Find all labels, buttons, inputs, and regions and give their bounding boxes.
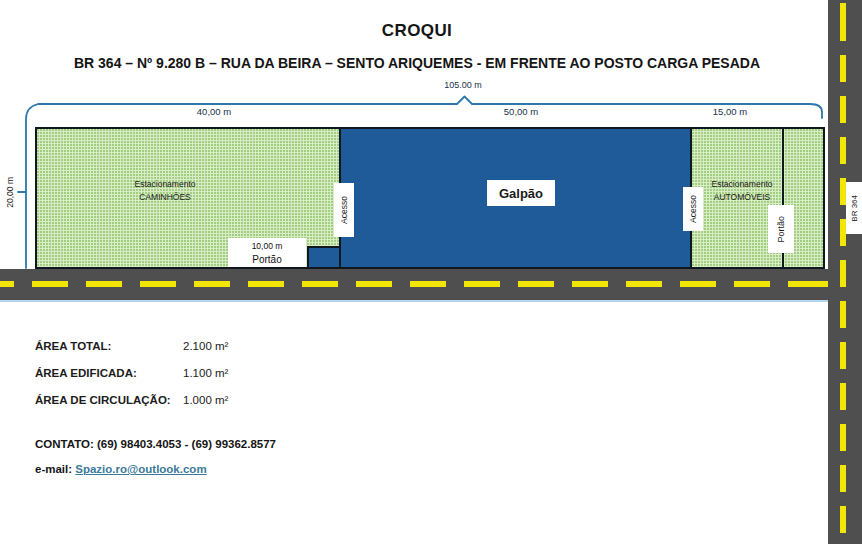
- site-plan: Estacionamento CAMINHÕES Galpão Acesso A…: [35, 127, 825, 269]
- dim-warehouse-label: 50,00 m: [461, 106, 581, 117]
- dim-car-parking-label: 15,00 m: [670, 106, 790, 117]
- area-value: 2.100 m²: [183, 340, 228, 352]
- area-row-circulation: ÁREA DE CIRCULAÇÃO: 1.000 m²: [35, 386, 228, 413]
- lane-marking-vertical: [840, 0, 846, 544]
- area-label: ÁREA DE CIRCULAÇÃO:: [35, 394, 183, 406]
- access-left-label: Acesso: [334, 183, 354, 237]
- page-subtitle: BR 364 – Nº 9.280 B – RUA DA BEIRA – SEN…: [0, 55, 834, 71]
- car-parking-label: Estacionamento AUTOMÓVEIS: [657, 178, 827, 204]
- highway-label: BR 364: [846, 182, 862, 234]
- truck-parking-label: Estacionamento CAMINHÕES: [37, 178, 293, 204]
- dim-depth-label: 20,00 m: [1, 160, 18, 224]
- contact-email-row: e-mail: Spazio.ro@outlook.com: [35, 463, 207, 475]
- page-title: CROQUI: [0, 21, 834, 41]
- road-vertical-br364: [828, 0, 862, 544]
- areas-table: ÁREA TOTAL: 2.100 m² ÁREA EDIFICADA: 1.1…: [35, 332, 228, 413]
- lane-marking-horizontal: [0, 281, 830, 287]
- contact-phones: CONTATO: (69) 98403.4053 - (69) 99362.85…: [35, 438, 276, 450]
- area-row-built: ÁREA EDIFICADA: 1.100 m²: [35, 359, 228, 386]
- email-link[interactable]: Spazio.ro@outlook.com: [75, 463, 206, 475]
- area-label: ÁREA EDIFICADA:: [35, 367, 183, 379]
- email-label: e-mail:: [35, 463, 72, 475]
- dim-total-label: 105.00 m: [403, 80, 523, 90]
- road-bottom-edge: [0, 300, 830, 302]
- area-label: ÁREA TOTAL:: [35, 340, 183, 352]
- area-row-total: ÁREA TOTAL: 2.100 m²: [35, 332, 228, 359]
- warehouse-notch: [307, 246, 339, 267]
- bottom-gate-label: 10,00 m Portão: [228, 238, 306, 267]
- road-horizontal: [0, 269, 830, 300]
- area-value: 1.000 m²: [183, 394, 228, 406]
- right-gate-label: Portão: [768, 205, 794, 253]
- croqui-page: CROQUI BR 364 – Nº 9.280 B – RUA DA BEIR…: [0, 0, 862, 544]
- dim-truck-parking-label: 40,00 m: [154, 106, 274, 117]
- area-value: 1.100 m²: [183, 367, 228, 379]
- warehouse-label: Galpão: [487, 180, 555, 206]
